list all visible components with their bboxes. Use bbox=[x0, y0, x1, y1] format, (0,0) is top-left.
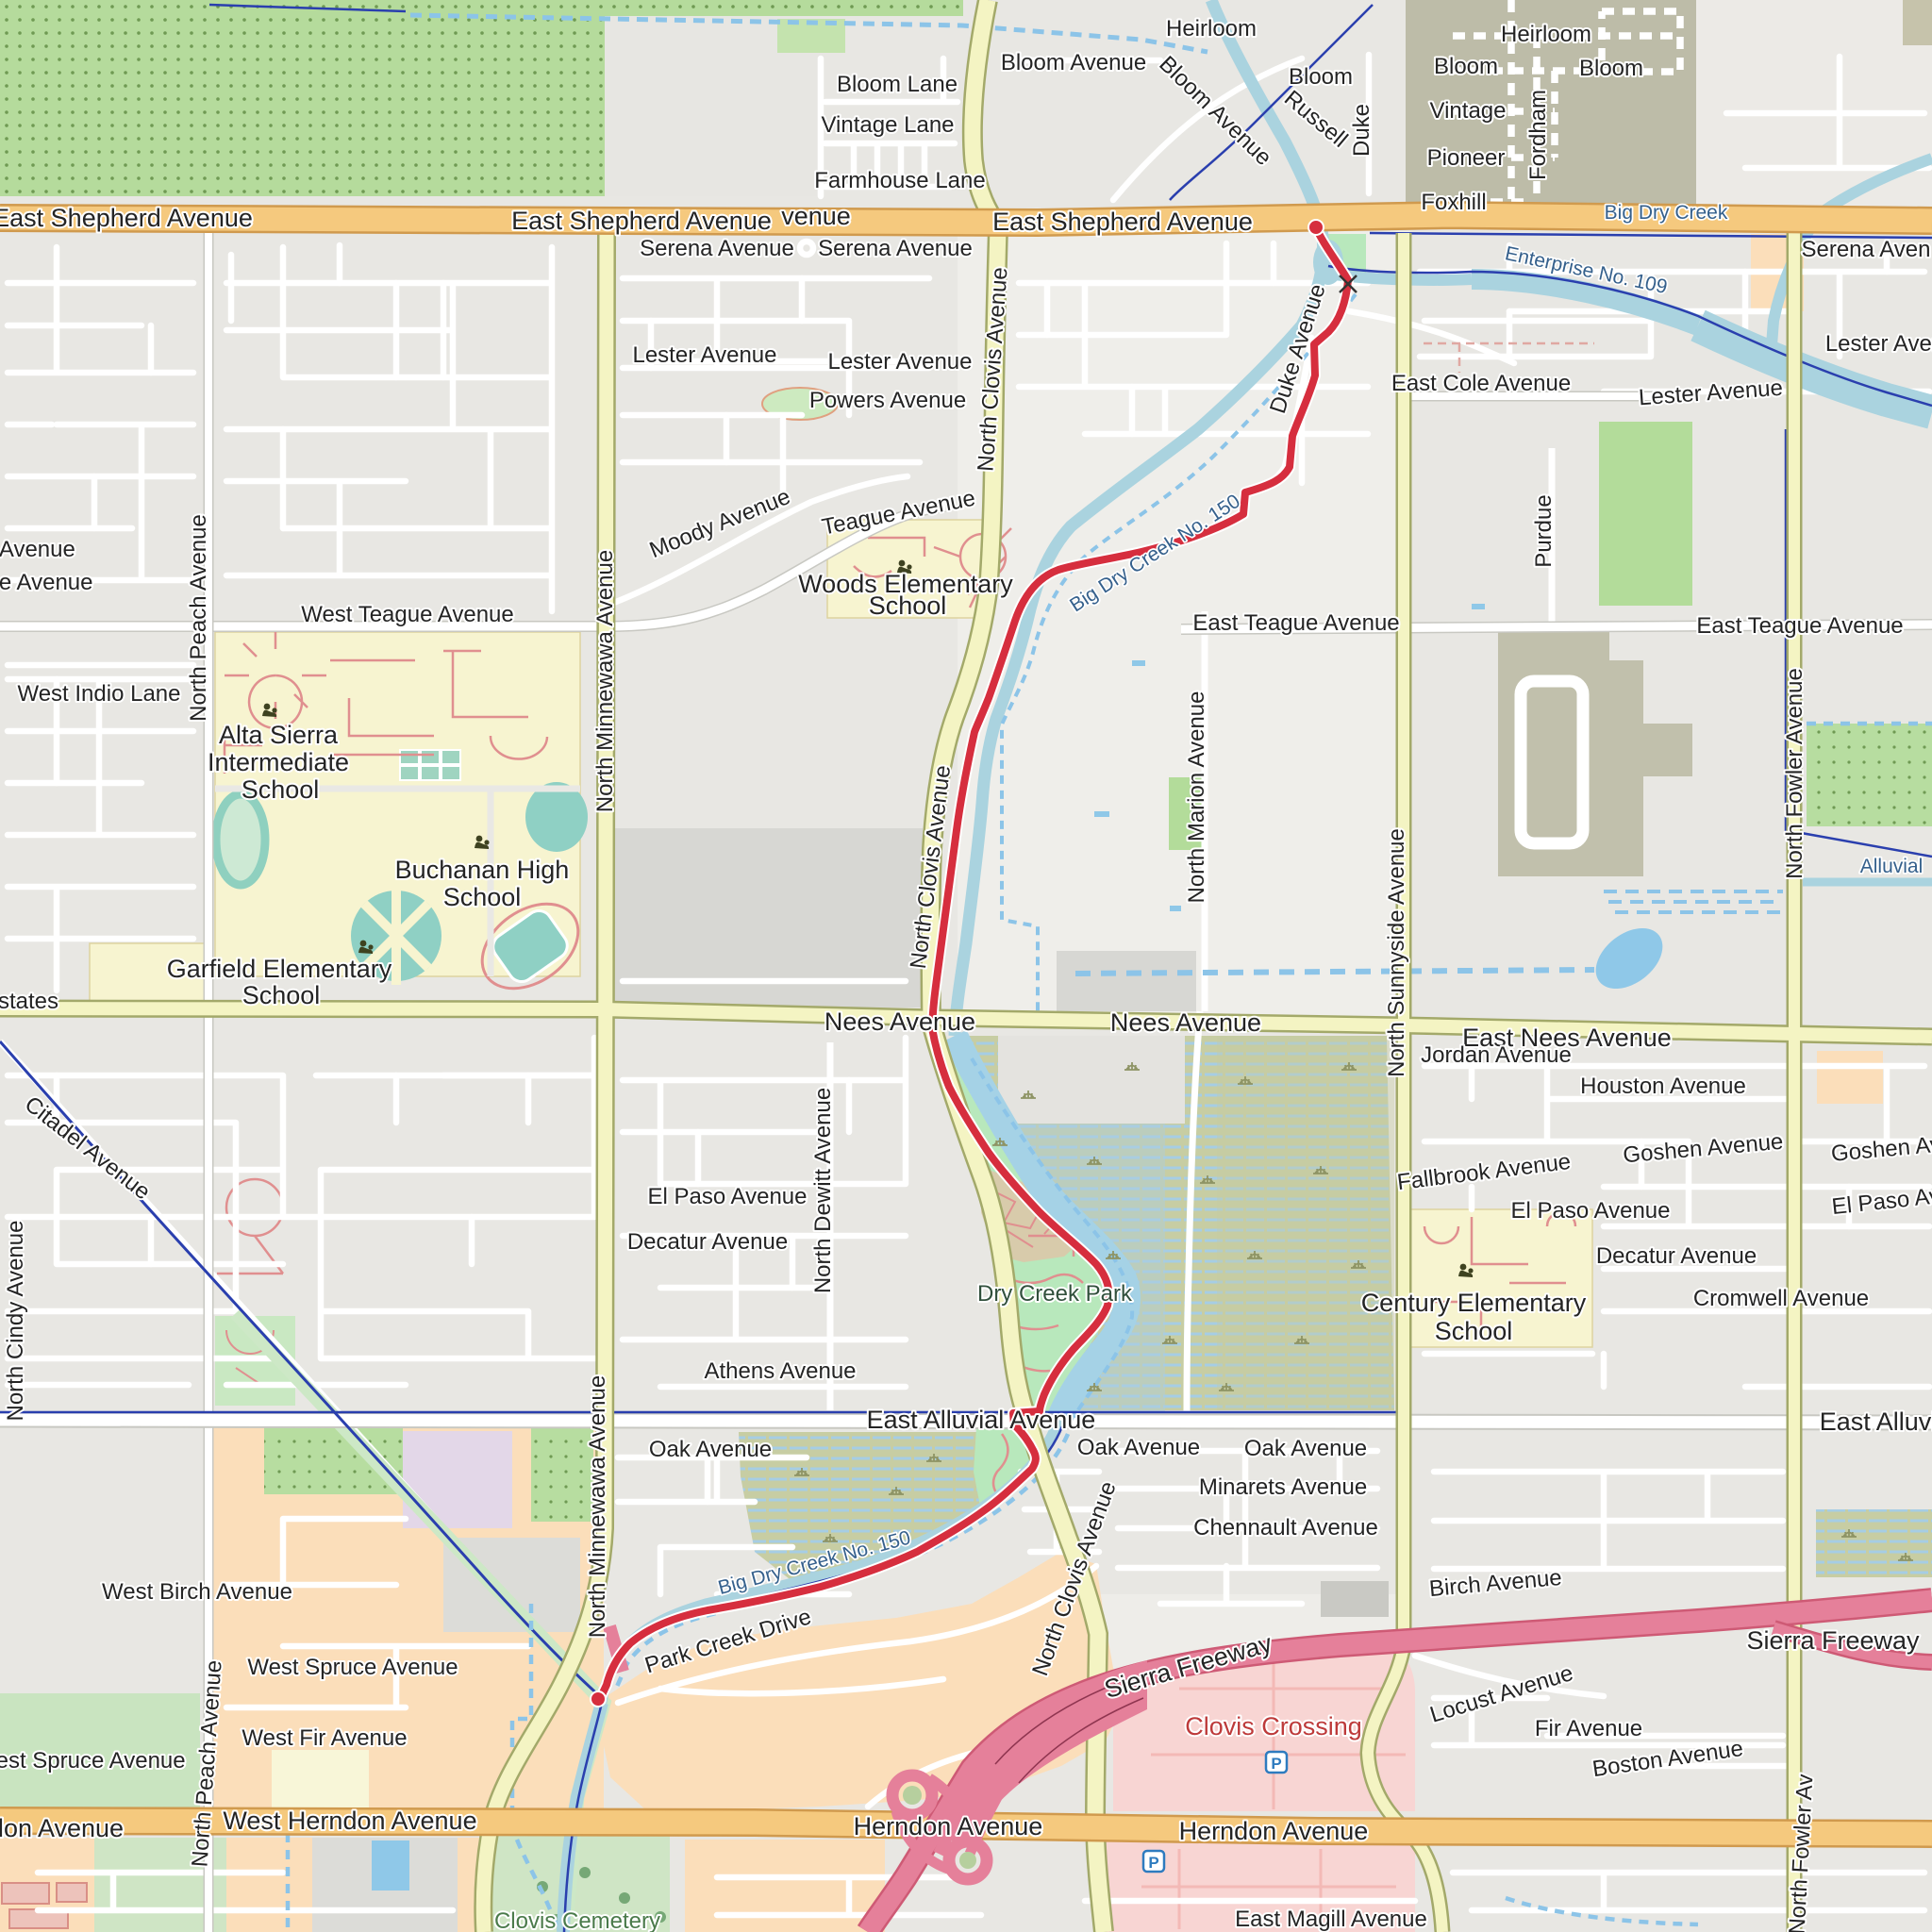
svg-text:East Magill Avenue: East Magill Avenue bbox=[1235, 1907, 1427, 1932]
svg-text:Herndon Avenue: Herndon Avenue bbox=[1179, 1817, 1369, 1845]
svg-text:Bloom: Bloom bbox=[1434, 54, 1498, 79]
svg-text:Serena Avenue: Serena Avenue bbox=[640, 236, 794, 261]
svg-text:Century Elementary: Century Elementary bbox=[1361, 1289, 1587, 1317]
svg-text:Oak Avenue: Oak Avenue bbox=[1244, 1436, 1367, 1461]
svg-text:Bloom: Bloom bbox=[1289, 64, 1353, 90]
svg-text:Garfield Elementary: Garfield Elementary bbox=[167, 955, 392, 983]
svg-text:West Herndon Avenue: West Herndon Avenue bbox=[223, 1807, 476, 1835]
svg-text:Clovis Cemetery: Clovis Cemetery bbox=[494, 1908, 660, 1932]
svg-text:Foxhill: Foxhill bbox=[1421, 190, 1486, 215]
svg-text:ue Avenue: ue Avenue bbox=[0, 570, 93, 595]
svg-text:Cromwell Avenue: Cromwell Avenue bbox=[1693, 1286, 1869, 1311]
svg-text:Lester Avenue: Lester Avenue bbox=[827, 349, 972, 375]
svg-text:Clovis Crossing: Clovis Crossing bbox=[1185, 1712, 1362, 1740]
svg-text:East Alluvial Av: East Alluvial Av bbox=[1820, 1407, 1932, 1436]
svg-text:Intermediate: Intermediate bbox=[208, 748, 349, 776]
svg-text:Vintage Lane: Vintage Lane bbox=[821, 112, 954, 138]
svg-text:North Sunnyside Avenue: North Sunnyside Avenue bbox=[1384, 828, 1409, 1077]
svg-text:El Paso Avenue: El Paso Avenue bbox=[1510, 1198, 1670, 1224]
svg-text:North Cindy Avenue: North Cindy Avenue bbox=[3, 1220, 28, 1421]
svg-text:West Fir Avenue: West Fir Avenue bbox=[241, 1725, 407, 1751]
svg-text:Oak Avenue: Oak Avenue bbox=[649, 1437, 772, 1462]
svg-text:P: P bbox=[1271, 1755, 1281, 1773]
svg-text:North Dewitt Avenue: North Dewitt Avenue bbox=[810, 1088, 836, 1293]
svg-text:East Teague Avenue: East Teague Avenue bbox=[1696, 613, 1903, 639]
svg-text:North Minnewawa Avenue: North Minnewawa Avenue bbox=[592, 550, 618, 812]
svg-text:Houston Avenue: Houston Avenue bbox=[1580, 1074, 1746, 1099]
svg-text:West Spruce Avenue: West Spruce Avenue bbox=[247, 1655, 458, 1680]
svg-text:Oak Avenue: Oak Avenue bbox=[1077, 1435, 1200, 1460]
svg-text:School: School bbox=[443, 883, 522, 911]
svg-text:Vintage: Vintage bbox=[1430, 98, 1507, 124]
svg-text:Serena Avenue: Serena Avenue bbox=[818, 236, 973, 261]
svg-text:West Indio Lane: West Indio Lane bbox=[17, 681, 180, 707]
svg-text:Powers Avenue: Powers Avenue bbox=[809, 388, 966, 413]
svg-text:Chennault Avenue: Chennault Avenue bbox=[1193, 1515, 1378, 1541]
svg-text:Heirloom: Heirloom bbox=[1501, 22, 1591, 47]
svg-text:North Marion Avenue: North Marion Avenue bbox=[1184, 691, 1209, 903]
svg-text:School: School bbox=[241, 775, 320, 804]
svg-text:Athens Avenue: Athens Avenue bbox=[704, 1358, 856, 1384]
svg-text:venue: venue bbox=[781, 202, 851, 230]
svg-text:Lester Aven: Lester Aven bbox=[1825, 331, 1932, 357]
svg-text:Serena Aven: Serena Aven bbox=[1801, 237, 1930, 262]
svg-text:Heirloom: Heirloom bbox=[1166, 16, 1257, 42]
svg-text:P: P bbox=[1148, 1854, 1158, 1872]
svg-text:Duke: Duke bbox=[1349, 104, 1374, 157]
svg-text:Herndon Avenue: Herndon Avenue bbox=[854, 1812, 1043, 1840]
svg-text:Dry Creek Park: Dry Creek Park bbox=[977, 1281, 1133, 1307]
svg-text:Bloom Avenue: Bloom Avenue bbox=[1001, 50, 1146, 75]
svg-text:School: School bbox=[1435, 1317, 1513, 1345]
svg-text:Purdue: Purdue bbox=[1531, 494, 1557, 567]
svg-text:West Spruce Avenue: West Spruce Avenue bbox=[0, 1748, 186, 1774]
svg-text:Fir Avenue: Fir Avenue bbox=[1535, 1716, 1642, 1741]
svg-text:Alluvial: Alluvial bbox=[1860, 856, 1924, 877]
svg-text:East Cole Avenue: East Cole Avenue bbox=[1391, 371, 1571, 396]
svg-text:Buchanan High: Buchanan High bbox=[395, 856, 570, 884]
svg-text:East Teague Avenue: East Teague Avenue bbox=[1192, 610, 1399, 636]
svg-text:Decatur Avenue: Decatur Avenue bbox=[627, 1229, 788, 1255]
svg-text:School: School bbox=[242, 981, 321, 1009]
svg-text:Alta Sierra: Alta Sierra bbox=[219, 721, 339, 749]
svg-text:East Shepherd Avenue: East Shepherd Avenue bbox=[0, 204, 253, 232]
svg-text:Decatur Avenue: Decatur Avenue bbox=[1596, 1243, 1757, 1269]
svg-text:Bloom Lane: Bloom Lane bbox=[837, 72, 958, 97]
svg-text:East Alluvial Avenue: East Alluvial Avenue bbox=[867, 1406, 1096, 1434]
svg-text:School: School bbox=[869, 591, 947, 620]
svg-text:Farmhouse Lane: Farmhouse Lane bbox=[814, 168, 985, 193]
svg-text:North Minnewawa Avenue: North Minnewawa Avenue bbox=[585, 1375, 610, 1638]
svg-text:Minarets Avenue: Minarets Avenue bbox=[1199, 1474, 1367, 1500]
svg-text:Nees Avenue: Nees Avenue bbox=[824, 1008, 975, 1036]
svg-text:El Paso Avenue: El Paso Avenue bbox=[647, 1184, 807, 1209]
svg-text:e Avenue: e Avenue bbox=[0, 537, 75, 562]
svg-text:East Shepherd Avenue: East Shepherd Avenue bbox=[511, 207, 772, 235]
svg-text:Fordham: Fordham bbox=[1525, 90, 1551, 180]
svg-text:North Fowler Avenue: North Fowler Avenue bbox=[1782, 668, 1807, 879]
svg-text:states: states bbox=[0, 989, 58, 1014]
svg-text:West Birch Avenue: West Birch Avenue bbox=[102, 1579, 292, 1605]
svg-text:East Shepherd Avenue: East Shepherd Avenue bbox=[992, 208, 1253, 236]
svg-text:Nees Avenue: Nees Avenue bbox=[1110, 1008, 1261, 1037]
svg-text:Big Dry Creek: Big Dry Creek bbox=[1605, 202, 1728, 224]
svg-text:don Avenue: don Avenue bbox=[0, 1814, 124, 1842]
svg-text:Bloom: Bloom bbox=[1579, 56, 1643, 81]
svg-text:Sierra Freeway: Sierra Freeway bbox=[1746, 1626, 1920, 1655]
svg-text:West Teague Avenue: West Teague Avenue bbox=[301, 602, 514, 627]
svg-text:Pioneer: Pioneer bbox=[1427, 145, 1506, 171]
svg-text:North Peach Avenue: North Peach Avenue bbox=[186, 514, 211, 722]
svg-text:Jordan Avenue: Jordan Avenue bbox=[1421, 1042, 1572, 1068]
svg-text:Lester Avenue: Lester Avenue bbox=[632, 342, 776, 368]
